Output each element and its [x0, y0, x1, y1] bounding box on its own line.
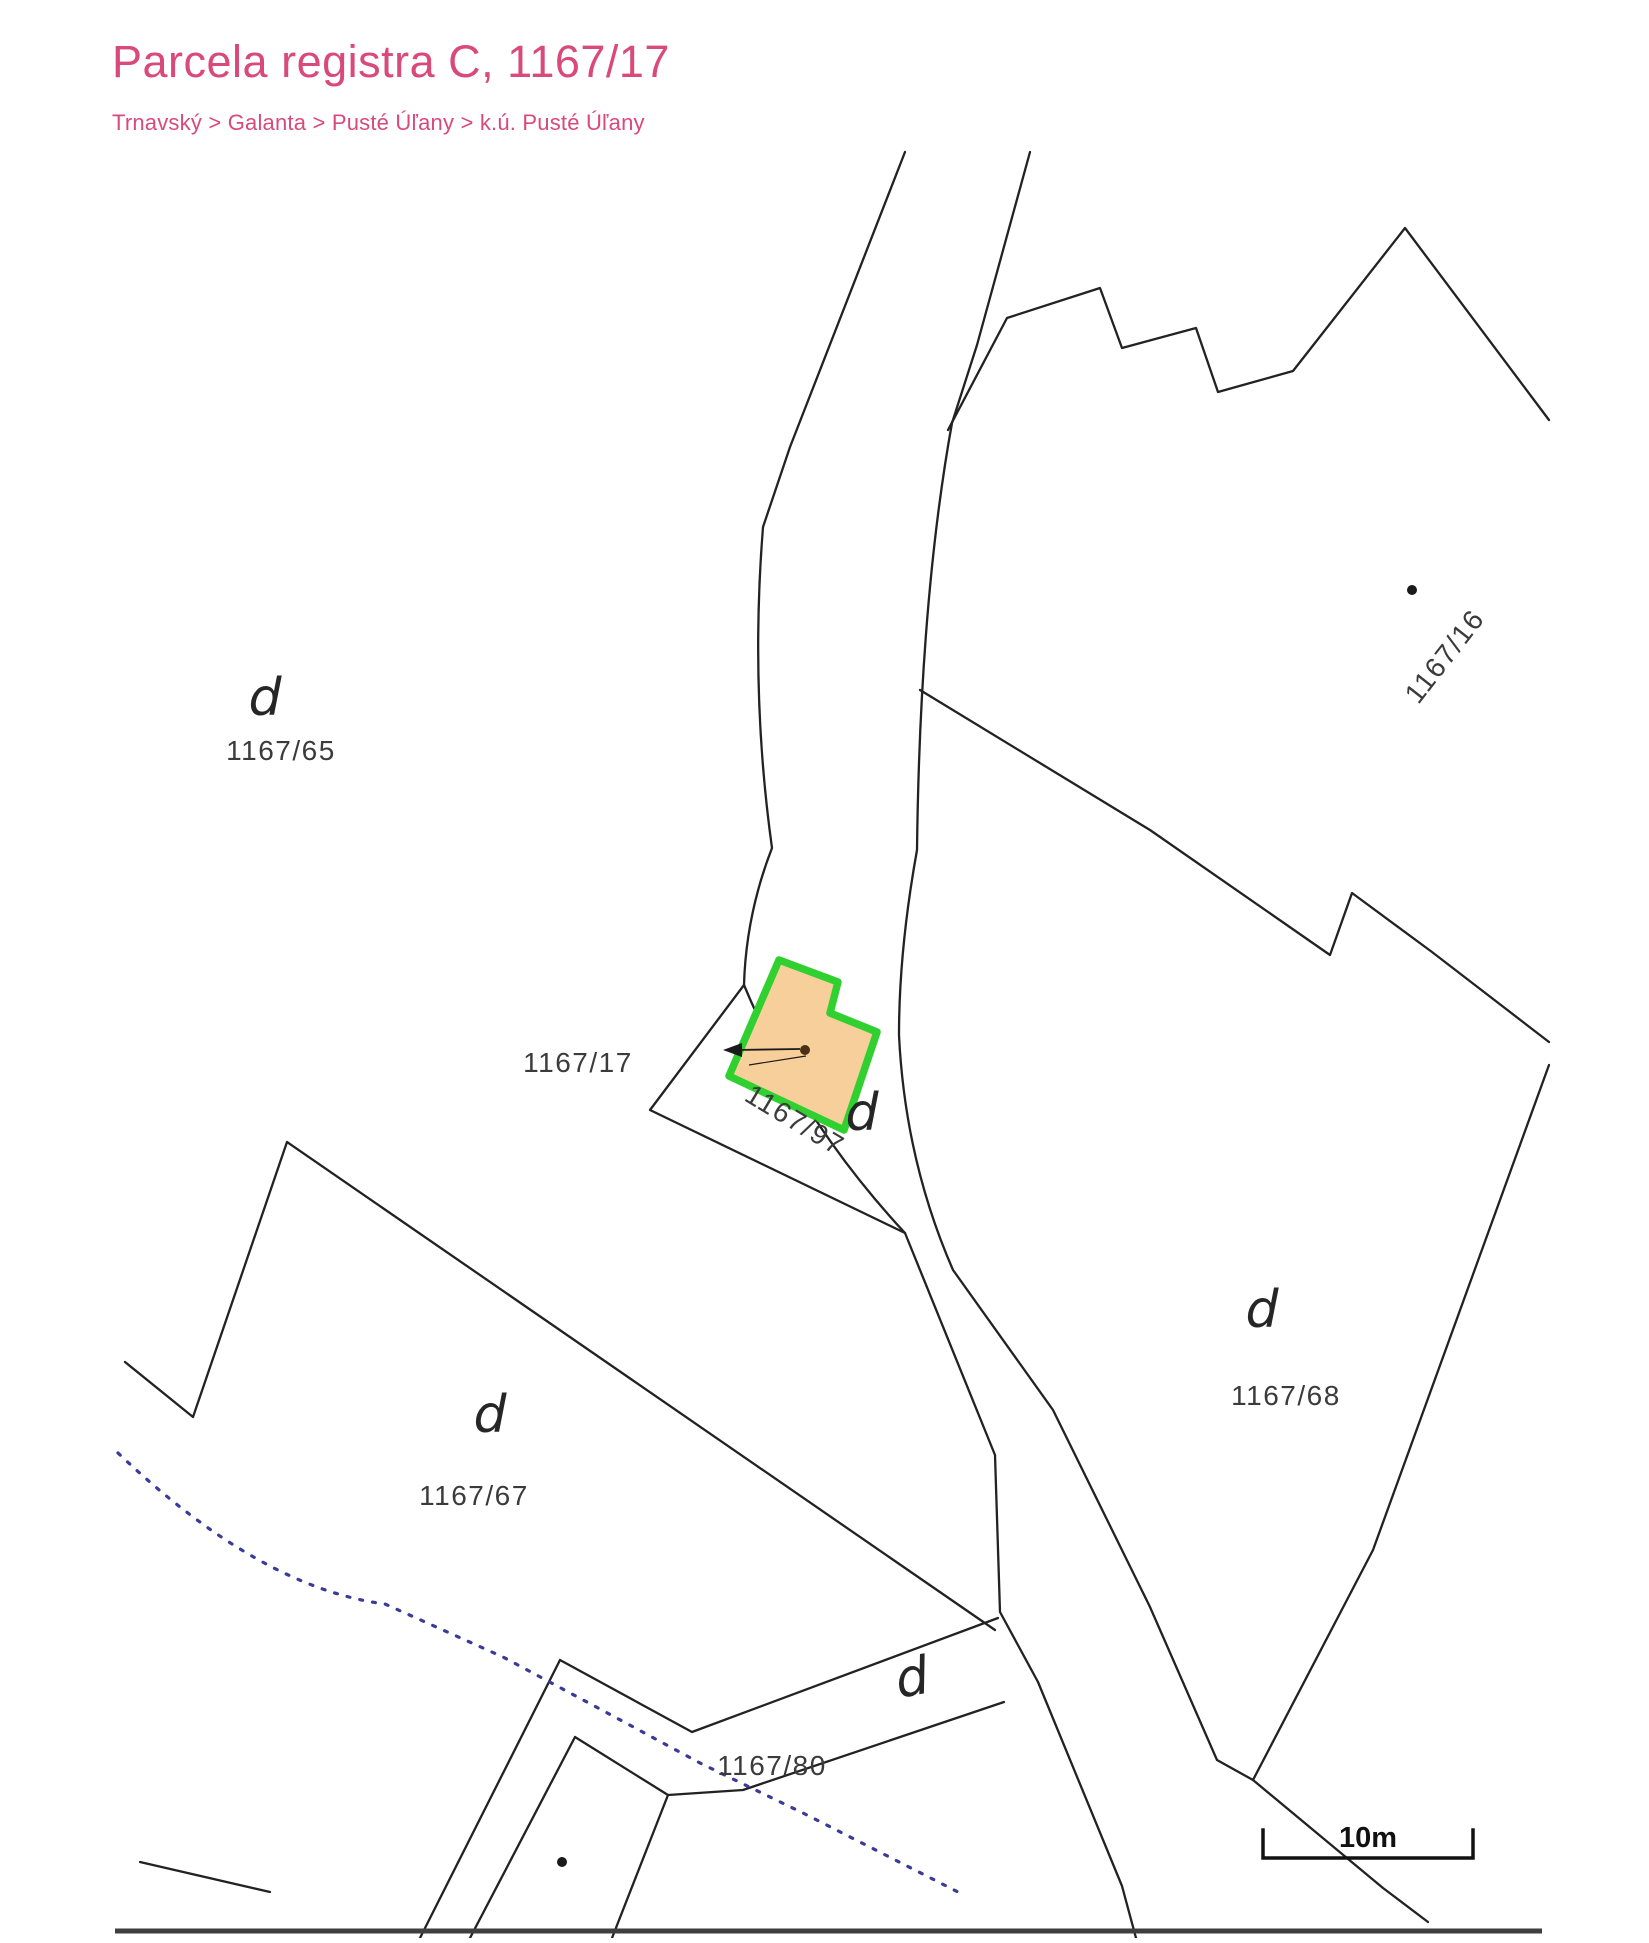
building-letter-label: d	[891, 1646, 935, 1711]
parcel-1167-16-lower-boundary	[920, 690, 1549, 1042]
scale-bar-label: 10m	[1339, 1822, 1397, 1854]
map-dot	[1407, 585, 1417, 595]
building-letter-label: d	[1245, 1280, 1279, 1340]
path-1167-80-boundaries	[140, 1618, 1004, 1938]
parcel-label: 1167/16	[1399, 603, 1491, 708]
cadastral-map[interactable]: 1167/651167/171167/971167/161167/681167/…	[0, 0, 1649, 1938]
map-dot	[800, 1045, 810, 1055]
parcel-label: 1167/68	[1231, 1380, 1341, 1411]
parcel-label: 1167/17	[523, 1047, 633, 1078]
building-letter-label: d	[845, 1083, 879, 1143]
parcel-label: 1167/67	[419, 1480, 529, 1511]
parcel-label: 1167/80	[717, 1750, 827, 1781]
road-right-edge	[899, 152, 1428, 1922]
breadcrumb[interactable]: Trnavský > Galanta > Pusté Úľany > k.ú. …	[112, 110, 670, 136]
page-title: Parcela registra C, 1167/17	[112, 36, 670, 88]
page-header: Parcela registra C, 1167/17 Trnavský > G…	[112, 36, 670, 136]
scale-bar: 10m	[1263, 1822, 1473, 1858]
parcel-1167-16-stair-boundary	[948, 228, 1549, 430]
parcel-1167-68-boundary	[1253, 1065, 1549, 1780]
building-letter-label: d	[248, 668, 282, 728]
building-letter-label: d	[473, 1385, 507, 1445]
parcel-label: 1167/65	[226, 735, 336, 766]
map-dot	[557, 1857, 567, 1867]
